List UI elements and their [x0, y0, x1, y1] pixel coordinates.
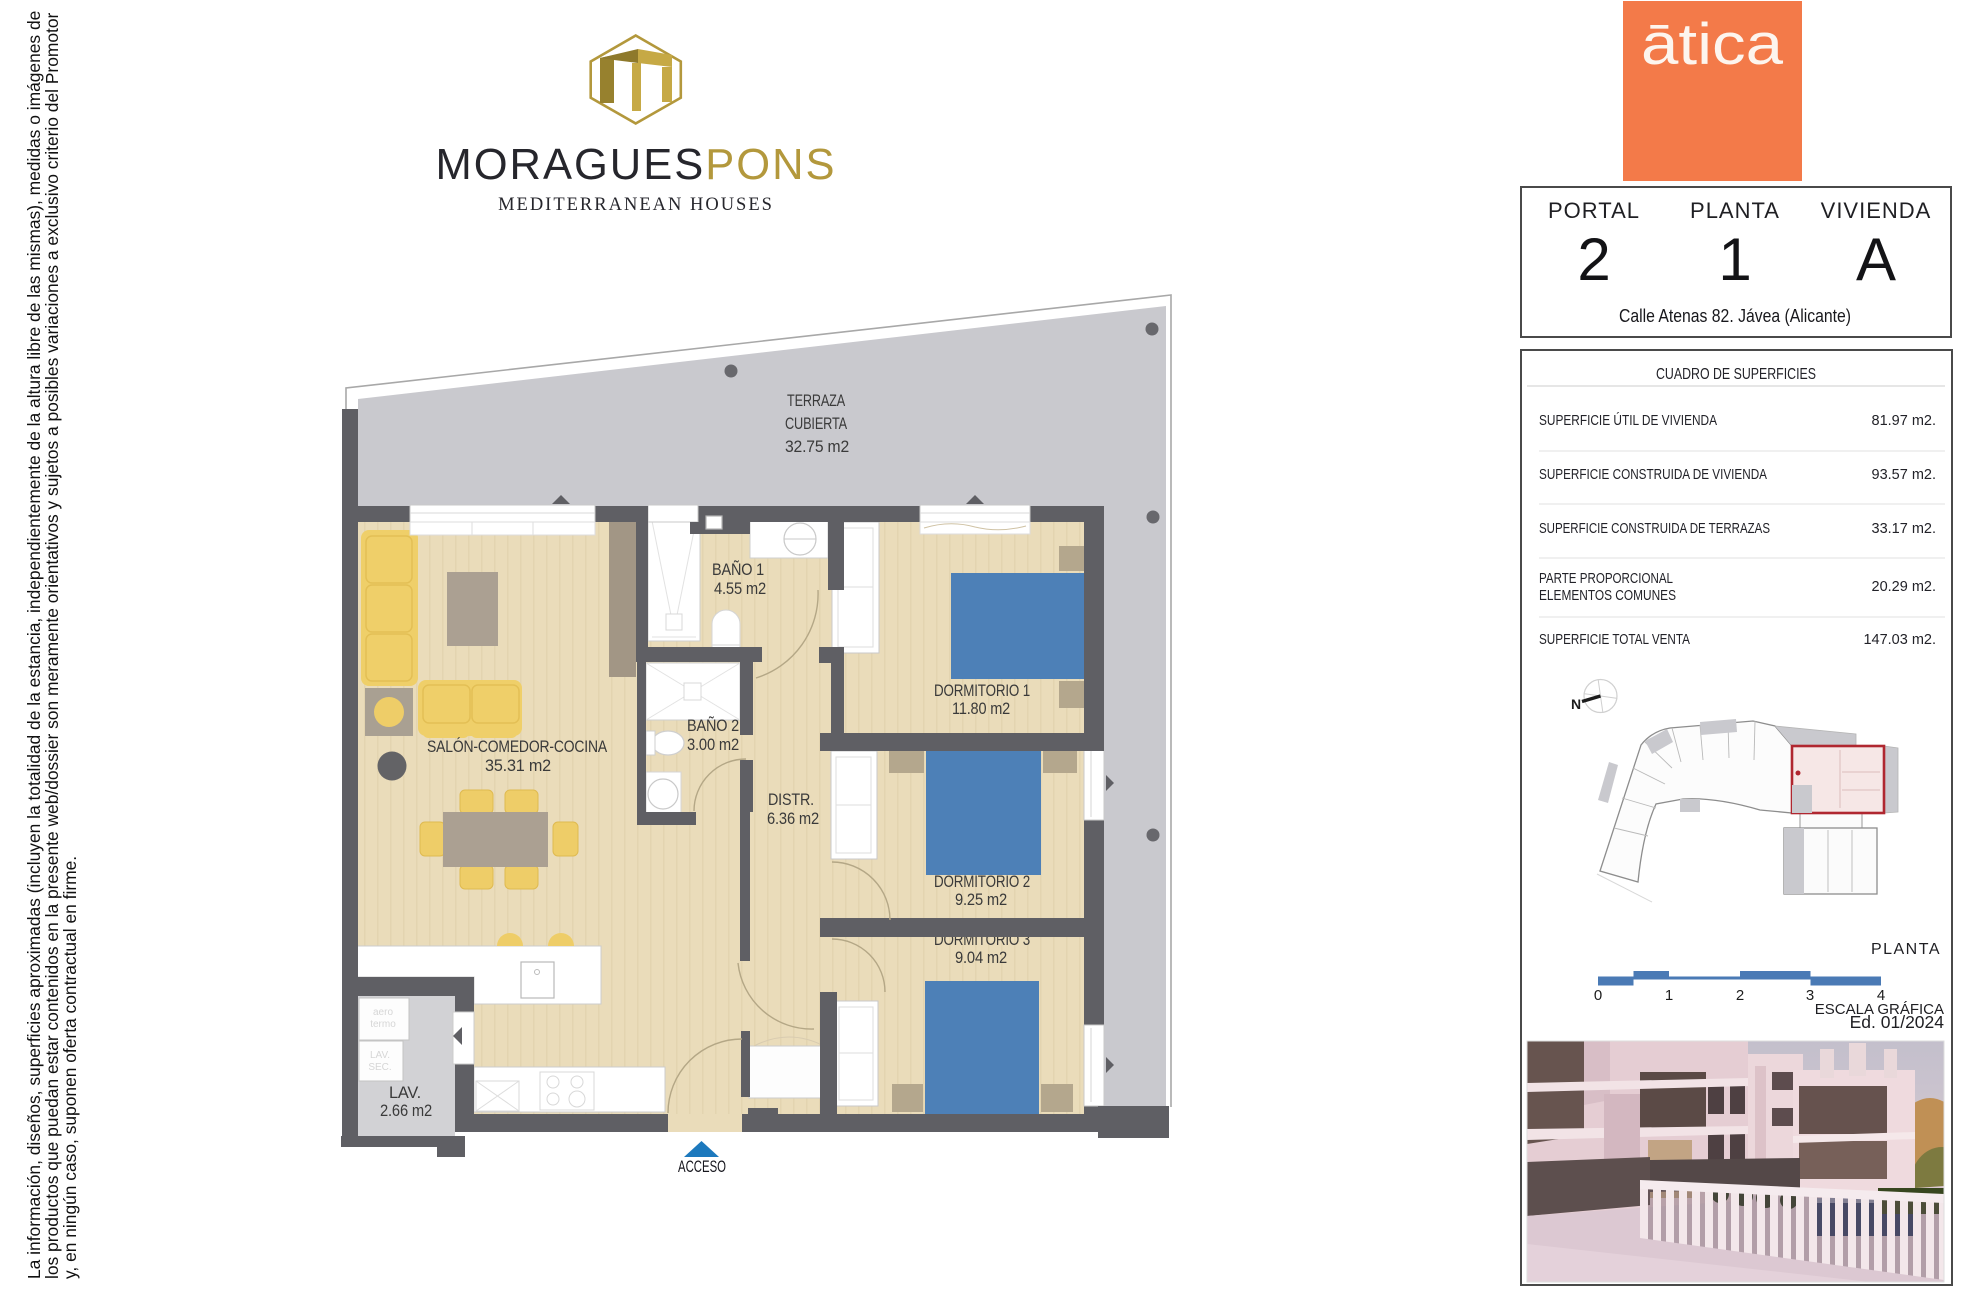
svg-text:ACCESO: ACCESO [678, 1158, 726, 1176]
svg-text:aero: aero [373, 1007, 393, 1018]
svg-text:9.25 m2: 9.25 m2 [955, 890, 1007, 909]
svg-text:Ed. 01/2024: Ed. 01/2024 [1850, 1012, 1945, 1032]
svg-text:PARTE PROPORCIONAL: PARTE PROPORCIONAL [1539, 571, 1673, 587]
svg-text:BAÑO 2: BAÑO 2 [687, 716, 739, 735]
svg-text:N: N [1571, 696, 1581, 712]
svg-text:20.29 m2.: 20.29 m2. [1872, 579, 1937, 595]
svg-text:MORAGUESPONS: MORAGUESPONS [435, 141, 836, 189]
svg-text:ātica: ātica [1641, 12, 1784, 77]
svg-text:y, en ningún caso, suponen ofe: y, en ningún caso, suponen oferta contra… [60, 856, 80, 1279]
svg-text:DORMITORIO 1: DORMITORIO 1 [934, 681, 1030, 700]
svg-text:BAÑO 1: BAÑO 1 [712, 560, 764, 579]
svg-text:93.57 m2.: 93.57 m2. [1872, 467, 1937, 483]
svg-text:MEDITERRANEAN HOUSES: MEDITERRANEAN HOUSES [498, 195, 774, 215]
svg-text:SUPERFICIE ÚTIL DE VIVIENDA: SUPERFICIE ÚTIL DE VIVIENDA [1539, 412, 1717, 429]
svg-text:SUPERFICIE CONSTRUIDA DE TERRA: SUPERFICIE CONSTRUIDA DE TERRAZAS [1539, 521, 1770, 537]
svg-text:DORMITORIO 2: DORMITORIO 2 [934, 872, 1030, 891]
svg-text:0: 0 [1594, 987, 1602, 1004]
svg-text:DISTR.: DISTR. [768, 790, 814, 809]
svg-text:CUBIERTA: CUBIERTA [785, 414, 848, 433]
svg-text:los productos que puedan estar: los productos que puedan estar contenido… [42, 12, 62, 1279]
svg-text:3: 3 [1806, 987, 1814, 1004]
svg-text:1: 1 [1665, 987, 1673, 1004]
svg-text:CUADRO DE SUPERFICIES: CUADRO DE SUPERFICIES [1656, 366, 1816, 383]
svg-text:SEC.: SEC. [368, 1062, 391, 1073]
svg-text:A: A [1856, 226, 1896, 293]
svg-text:9.04 m2: 9.04 m2 [955, 948, 1007, 967]
svg-text:La información, diseños, super: La información, diseños, superficies apr… [24, 11, 44, 1279]
svg-text:11.80 m2: 11.80 m2 [952, 699, 1010, 718]
svg-text:SALÓN-COMEDOR-COCINA: SALÓN-COMEDOR-COCINA [427, 737, 608, 756]
svg-text:32.75 m2: 32.75 m2 [785, 437, 849, 456]
svg-text:1: 1 [1718, 226, 1751, 293]
svg-text:2: 2 [1736, 987, 1744, 1004]
svg-text:LAV.: LAV. [389, 1083, 421, 1102]
svg-text:VIVIENDA: VIVIENDA [1821, 198, 1932, 223]
svg-text:2.66 m2: 2.66 m2 [380, 1101, 432, 1120]
svg-text:LAV.: LAV. [370, 1050, 390, 1061]
svg-text:81.97 m2.: 81.97 m2. [1872, 413, 1937, 429]
svg-text:6.36 m2: 6.36 m2 [767, 809, 819, 828]
svg-text:147.03 m2.: 147.03 m2. [1863, 632, 1936, 648]
svg-text:SUPERFICIE CONSTRUIDA DE VIVIE: SUPERFICIE CONSTRUIDA DE VIVIENDA [1539, 467, 1767, 483]
svg-text:ELEMENTOS COMUNES: ELEMENTOS COMUNES [1539, 588, 1676, 604]
svg-text:3.00 m2: 3.00 m2 [687, 735, 739, 754]
svg-text:PLANTA: PLANTA [1690, 198, 1780, 223]
svg-text:33.17 m2.: 33.17 m2. [1872, 521, 1937, 537]
svg-text:PLANTA: PLANTA [1871, 941, 1941, 958]
svg-text:PORTAL: PORTAL [1548, 198, 1640, 223]
svg-text:termo: termo [370, 1019, 396, 1030]
svg-text:TERRAZA: TERRAZA [787, 391, 846, 410]
svg-text:2: 2 [1577, 226, 1610, 293]
svg-text:Calle Atenas 82. Jávea (Alican: Calle Atenas 82. Jávea (Alicante) [1619, 306, 1851, 326]
svg-text:4.55 m2: 4.55 m2 [714, 579, 766, 598]
svg-text:35.31 m2: 35.31 m2 [485, 756, 551, 775]
svg-text:SUPERFICIE TOTAL VENTA: SUPERFICIE TOTAL VENTA [1539, 632, 1690, 648]
